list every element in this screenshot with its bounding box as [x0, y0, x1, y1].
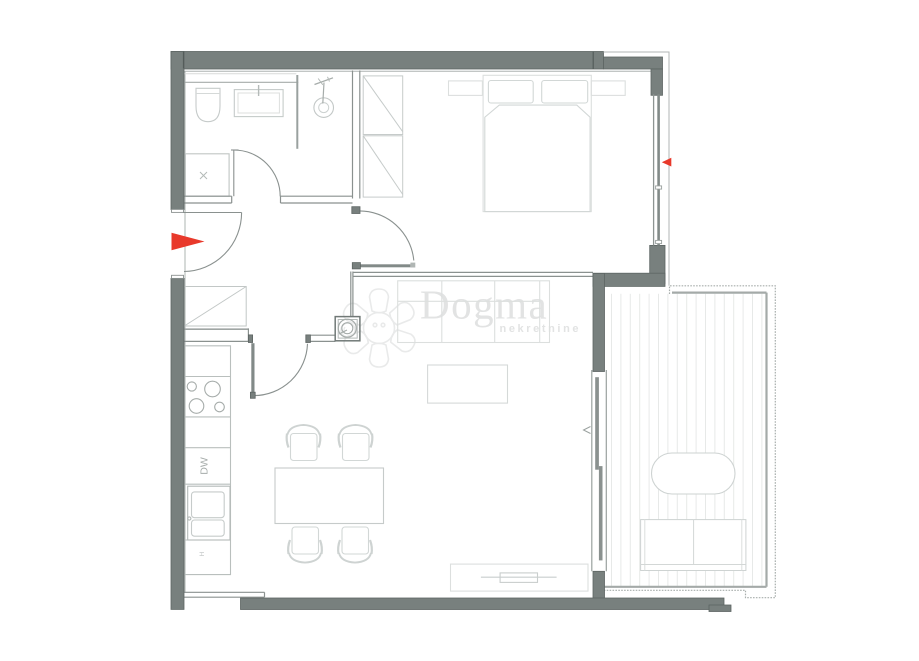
svg-text:nekretnine: nekretnine	[500, 323, 582, 335]
svg-text:Dogma: Dogma	[420, 282, 548, 328]
svg-text:DW: DW	[199, 457, 211, 475]
svg-text:H: H	[199, 551, 206, 556]
